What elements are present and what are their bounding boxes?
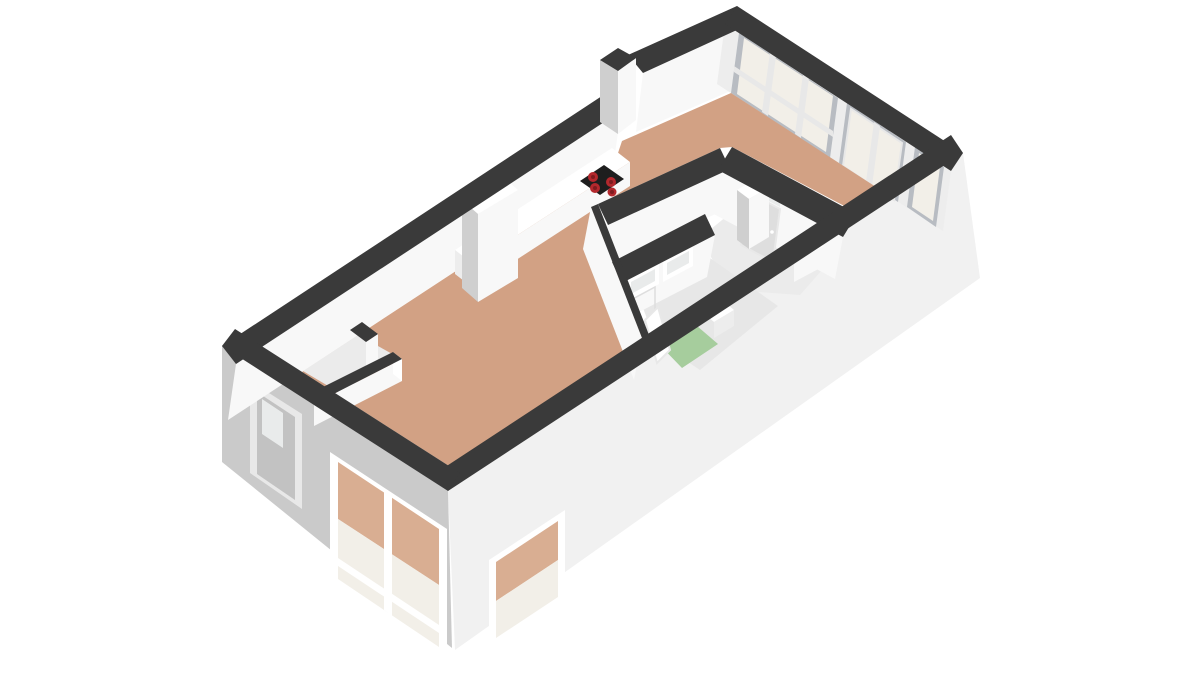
cabinet-side (462, 200, 478, 302)
burner-center (591, 175, 595, 179)
burner-center (593, 186, 597, 190)
burner-center (609, 180, 613, 184)
door-handle (770, 230, 774, 234)
burner-center (610, 190, 614, 194)
wall-pillar (600, 48, 636, 134)
column-side (737, 190, 749, 249)
pillar-side (600, 60, 618, 134)
floorplan-3d-render (0, 0, 1200, 675)
floorplan-stage (0, 0, 1200, 675)
